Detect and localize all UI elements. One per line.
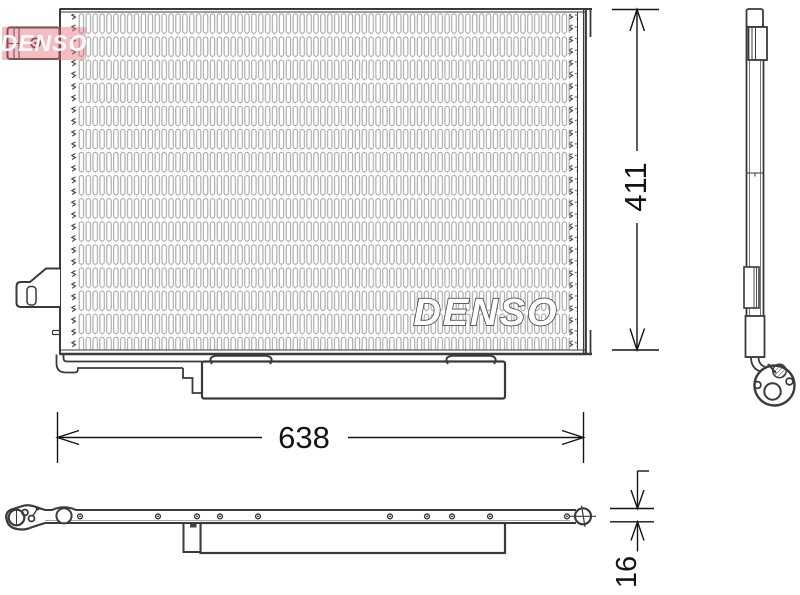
dimension-width: 638 xyxy=(58,412,584,463)
brand-logo-text: DENSO xyxy=(413,292,558,334)
dimension-depth: 16 xyxy=(610,471,654,588)
brand-watermark-text: DENSO xyxy=(2,30,86,57)
bottom-port-circle xyxy=(56,508,71,523)
bottom-view xyxy=(6,505,596,553)
fin-edge-left xyxy=(70,14,77,348)
brand-watermark: DENSO xyxy=(2,27,86,60)
front-view: DENSO xyxy=(8,8,593,399)
condenser-drawing: DENSO xyxy=(0,0,800,595)
side-flange xyxy=(754,364,794,406)
pipe-step xyxy=(183,368,202,393)
dimension-height-value: 411 xyxy=(618,162,653,211)
mount-bracket-left xyxy=(17,269,61,335)
side-top-cap xyxy=(747,9,764,27)
side-inlet-block xyxy=(749,27,768,60)
bottom-bolt-holes xyxy=(78,514,570,519)
bottom-left-flange xyxy=(6,505,45,529)
bottom-drier-box xyxy=(201,523,506,553)
fin-edge-right xyxy=(570,14,577,348)
receiver-drier xyxy=(202,362,505,399)
dimension-width-value: 638 xyxy=(278,420,330,455)
bottom-step-box xyxy=(184,523,201,552)
outlet-pipe xyxy=(57,355,203,394)
side-view xyxy=(744,9,795,406)
technical-drawing-canvas: DENSO xyxy=(0,0,800,595)
side-lower-section xyxy=(746,316,765,357)
dimension-depth-value: 16 xyxy=(611,556,643,588)
dimension-height: 411 xyxy=(612,10,659,351)
bottom-bar xyxy=(36,507,576,523)
